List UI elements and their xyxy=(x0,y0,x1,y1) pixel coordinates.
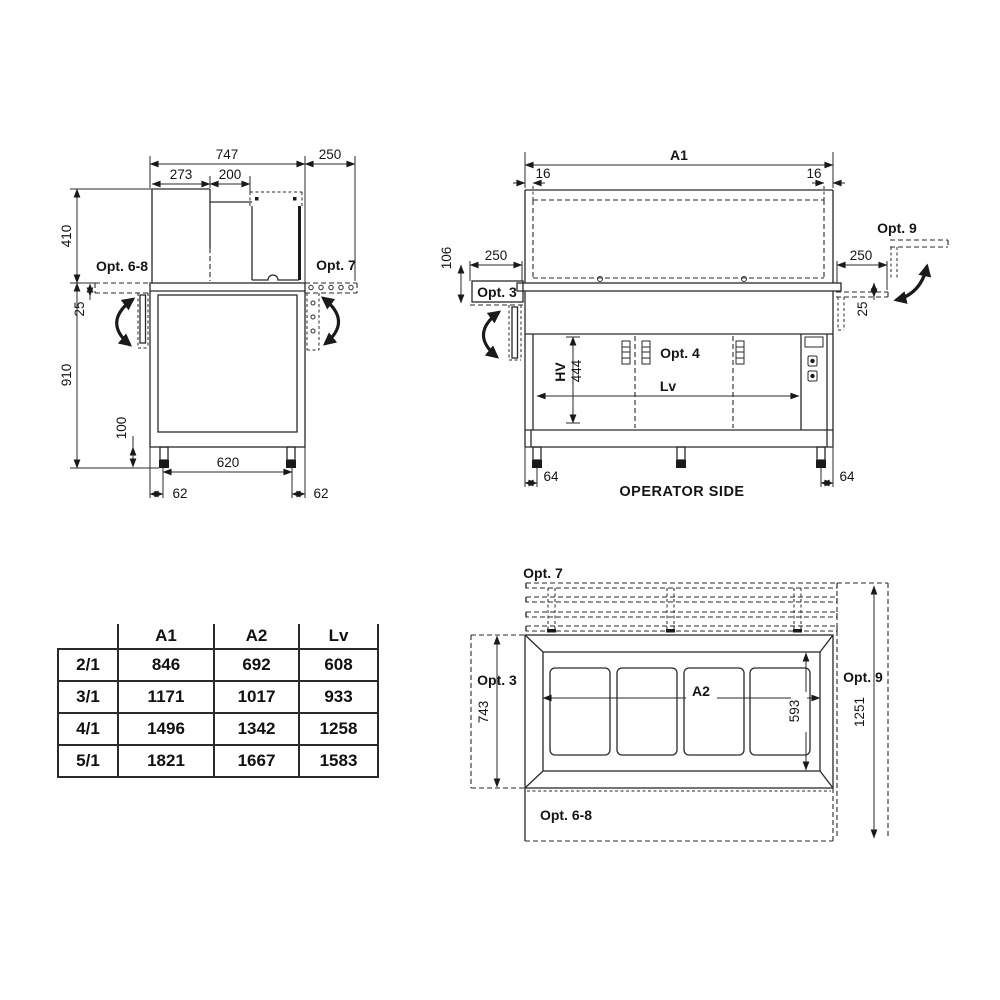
front-counter-top xyxy=(517,283,841,291)
label-opt-3: Opt. 3 xyxy=(477,284,517,300)
dim-62-right: 62 xyxy=(313,486,328,501)
dim-16-left: 16 xyxy=(535,166,550,181)
model-label: 2/1 xyxy=(58,649,118,681)
dim-273: 273 xyxy=(170,167,193,182)
dim-200: 200 xyxy=(219,167,242,182)
table-cell: 1667 xyxy=(214,745,299,777)
table-cell: 1821 xyxy=(118,745,214,777)
model-label: 4/1 xyxy=(58,713,118,745)
front-dimensions: A1 16 16 250 106 250 25 HV xyxy=(439,147,887,487)
model-label: 5/1 xyxy=(58,745,118,777)
front-shelf-left-opt3: Opt. 3 xyxy=(470,281,523,360)
dim-593: 593 xyxy=(787,700,802,723)
side-glass-unit xyxy=(250,192,302,280)
label-opt-6-8-top: Opt. 6-8 xyxy=(540,807,592,823)
dim-620: 620 xyxy=(217,455,240,470)
column-header-lv: Lv xyxy=(299,624,378,649)
side-shelf-right-opt7 xyxy=(305,283,357,350)
table-corner-cell xyxy=(58,624,118,649)
column-header-a1: A1 xyxy=(118,624,214,649)
table-cell: 1171 xyxy=(118,681,214,713)
model-label: 3/1 xyxy=(58,681,118,713)
side-dimensions: 747 250 273 200 410 910 25 100 xyxy=(59,147,355,501)
drawing-canvas: 747 250 273 200 410 910 25 100 xyxy=(0,0,1000,1000)
table-cell: 692 xyxy=(214,649,299,681)
fold-arrow-icon xyxy=(483,312,499,357)
dim-25: 25 xyxy=(72,301,87,316)
table-cell: 608 xyxy=(299,649,378,681)
gn-well xyxy=(550,668,610,755)
dim-747: 747 xyxy=(216,147,239,162)
label-opt-4: Opt. 4 xyxy=(660,345,700,361)
table-row: 3/1 1171 1017 933 xyxy=(58,681,378,713)
dim-64-right: 64 xyxy=(839,469,855,484)
spec-table: A1 A2 Lv 2/1 846 692 608 3/1 1171 1017 9… xyxy=(57,624,379,778)
column-header-a2: A2 xyxy=(214,624,299,649)
table-cell: 1583 xyxy=(299,745,378,777)
table-cell: 1258 xyxy=(299,713,378,745)
label-opt-6-8: Opt. 6-8 xyxy=(96,258,148,274)
side-view-drawing: 747 250 273 200 410 910 25 100 xyxy=(59,147,357,501)
dim-106: 106 xyxy=(439,247,454,270)
dim-16-right: 16 xyxy=(806,166,821,181)
label-operator-side: OPERATOR SIDE xyxy=(619,484,744,500)
front-shelf-right-opt9: Opt. 9 xyxy=(836,220,948,330)
spec-table-header-row: A1 A2 Lv xyxy=(58,624,378,649)
dim-100: 100 xyxy=(114,417,129,440)
dim-HV: HV xyxy=(552,362,568,382)
label-opt-9: Opt. 9 xyxy=(877,220,917,236)
table-cell: 1342 xyxy=(214,713,299,745)
front-view-drawing: Opt. 3 Opt. 9 xyxy=(439,147,948,500)
table-cell: 1017 xyxy=(214,681,299,713)
fold-arrow-icon xyxy=(323,298,339,344)
front-superstructure xyxy=(525,190,833,283)
dim-64-left: 64 xyxy=(543,469,559,484)
table-row: 5/1 1821 1667 1583 xyxy=(58,745,378,777)
door-handle xyxy=(736,341,744,364)
control-panel xyxy=(805,337,823,381)
panel-display xyxy=(805,337,823,347)
dim-910: 910 xyxy=(59,364,74,387)
dim-A1: A1 xyxy=(670,147,688,163)
dim-62-left: 62 xyxy=(172,486,187,501)
table-cell: 846 xyxy=(118,649,214,681)
dim-25-right: 25 xyxy=(855,301,870,316)
top-rails-opt7: Opt. 7 xyxy=(523,565,837,633)
side-counter-body xyxy=(150,283,305,468)
label-opt-9-top: Opt. 9 xyxy=(843,669,883,685)
dim-250-left: 250 xyxy=(485,248,508,263)
side-shelf-left-opt68 xyxy=(95,283,150,348)
fold-arrow-icon xyxy=(896,266,927,300)
dim-444: 444 xyxy=(569,359,584,382)
top-view-drawing: Opt. 7 Opt. 3 Opt. 9 xyxy=(471,565,888,841)
table-cell: 933 xyxy=(299,681,378,713)
dim-1251: 1251 xyxy=(852,697,867,727)
technical-drawing-sheet: 747 250 273 200 410 910 25 100 xyxy=(0,0,1000,1000)
dim-743: 743 xyxy=(476,701,491,724)
side-superstructure xyxy=(152,189,302,283)
dim-Lv: Lv xyxy=(660,378,677,394)
gn-well xyxy=(617,668,677,755)
fold-arrow-icon xyxy=(117,299,133,345)
door-handle xyxy=(622,341,630,364)
table-row: 2/1 846 692 608 xyxy=(58,649,378,681)
dim-250-right: 250 xyxy=(850,248,873,263)
dim-250: 250 xyxy=(319,147,342,162)
dim-410: 410 xyxy=(59,225,74,248)
top-zone-opt68: Opt. 6-8 xyxy=(525,788,833,841)
top-dimensions: 743 A2 593 1251 xyxy=(476,586,874,838)
door-handle xyxy=(642,341,650,364)
dim-A2: A2 xyxy=(692,683,710,699)
label-opt-7: Opt. 7 xyxy=(316,257,356,273)
table-row: 4/1 1496 1342 1258 xyxy=(58,713,378,745)
label-opt-7-top: Opt. 7 xyxy=(523,565,563,581)
table-cell: 1496 xyxy=(118,713,214,745)
